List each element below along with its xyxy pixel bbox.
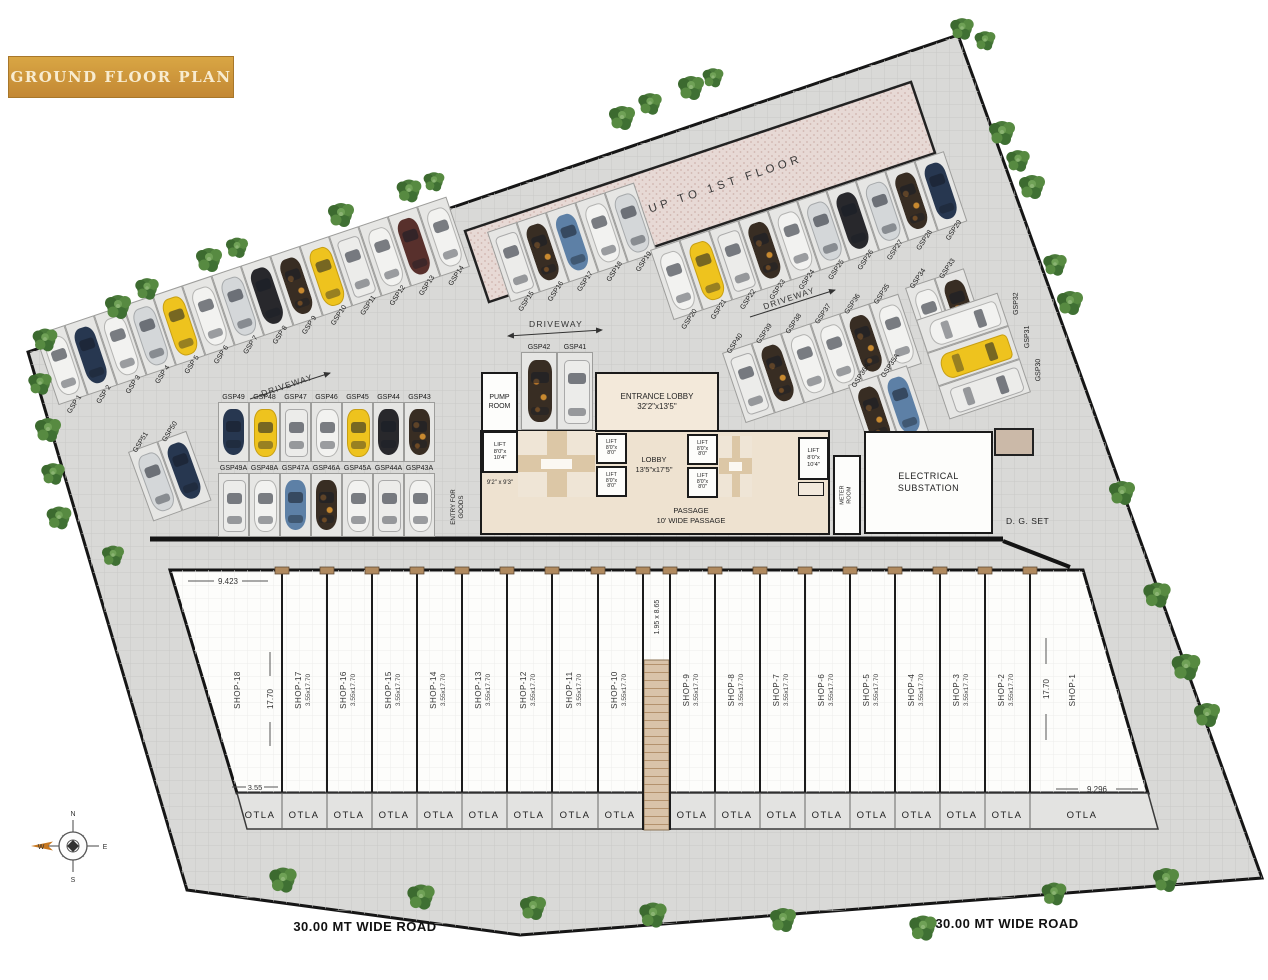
parking-stall-label: GSP45 bbox=[343, 394, 372, 401]
shop-label: SHOP-5 bbox=[862, 674, 871, 707]
shop-dim-label: 3.55x17.70 bbox=[395, 674, 402, 707]
otla-label: OTLA bbox=[289, 810, 320, 821]
car-icon bbox=[285, 409, 308, 457]
shop-dim-label: 3.55x17.70 bbox=[530, 674, 537, 707]
parking-stall-label: GSP43A bbox=[405, 465, 434, 472]
otla-label: OTLA bbox=[334, 810, 365, 821]
shop-label: SHOP-17 bbox=[294, 671, 303, 709]
car-icon bbox=[223, 480, 246, 532]
compass-rose: N E S W bbox=[31, 811, 108, 884]
shop-label: SHOP-7 bbox=[772, 674, 781, 707]
parking-stall-label: GSP43 bbox=[405, 394, 434, 401]
service-room bbox=[798, 482, 824, 496]
entry-for-goods-label: ENTRY FOR GOODS bbox=[450, 465, 466, 549]
shop-dim-label: 3.55x17.70 bbox=[440, 674, 447, 707]
shop-dim-label: 3.55x17.70 bbox=[873, 674, 880, 707]
parking-stall: GSP44 bbox=[373, 402, 404, 462]
entrance-lobby: ENTRANCE LOBBY 32'2"x13'5" bbox=[595, 372, 719, 432]
lobby-label: LOBBY 13'5"x17'5" bbox=[622, 448, 686, 482]
lift-mid-3: LIFT 8'0"x 8'0" bbox=[687, 434, 718, 465]
shop-dim-label: 3.55x17.70 bbox=[738, 674, 745, 707]
car-icon bbox=[409, 409, 430, 455]
parking-stall-label: GSP44 bbox=[374, 394, 403, 401]
shop-dim-label: 3.55x17.70 bbox=[693, 674, 700, 707]
otla-label: OTLA bbox=[560, 810, 591, 821]
shop-label: SHOP-6 bbox=[817, 674, 826, 707]
parking-stall: GSP45A bbox=[342, 473, 373, 537]
otla-label: OTLA bbox=[379, 810, 410, 821]
car-icon bbox=[223, 409, 244, 455]
parking-stall-label: GSP44A bbox=[374, 465, 403, 472]
parking-stall-label: GSP48A bbox=[250, 465, 279, 472]
shop-label: SHOP-1 bbox=[1068, 674, 1077, 707]
dim-corridor: 1.95 x 8.65 bbox=[654, 600, 661, 635]
car-icon bbox=[378, 409, 399, 455]
passage-label: PASSAGE 10' WIDE PASSAGE bbox=[598, 498, 784, 534]
otla-label: OTLA bbox=[722, 810, 753, 821]
shop-label: SHOP-4 bbox=[907, 674, 916, 707]
otla-label: OTLA bbox=[514, 810, 545, 821]
shop-label: SHOP-9 bbox=[682, 674, 691, 707]
stair-room bbox=[994, 428, 1034, 456]
electrical-substation: ELECTRICAL SUBSTATION bbox=[864, 431, 993, 534]
shop-label: SHOP-13 bbox=[474, 671, 483, 709]
shop-label: SHOP-12 bbox=[519, 671, 528, 709]
parking-stall: GSP47 bbox=[280, 402, 311, 462]
car-icon bbox=[564, 360, 590, 424]
room-9x9-label: 9'2" x 9'3" bbox=[478, 477, 522, 491]
shop-dim-label: 3.55x17.70 bbox=[783, 674, 790, 707]
lift-mid-4: LIFT 8'0"x 8'0" bbox=[687, 467, 718, 498]
parking-stall-label: GSP47A bbox=[281, 465, 310, 472]
otla-label: OTLA bbox=[605, 810, 636, 821]
car-icon bbox=[285, 480, 306, 530]
shop-dim-label: 3.55x17.70 bbox=[963, 674, 970, 707]
lift-left: LIFT 8'0"x 10'4" bbox=[482, 431, 518, 473]
plan-title-text: GROUND FLOOR PLAN bbox=[10, 68, 231, 86]
shop-label: SHOP-14 bbox=[429, 671, 438, 709]
dim-shop18-depth: 17.70 bbox=[266, 688, 275, 709]
dim-shop18-top: 9.423 bbox=[218, 577, 239, 586]
parking-stall-label: GSP47 bbox=[281, 394, 310, 401]
compass-e: E bbox=[103, 844, 108, 851]
shop-label: SHOP-15 bbox=[384, 671, 393, 709]
shop-dim-label: 3.55x17.70 bbox=[621, 674, 628, 707]
shop-dim-label: 3.55x17.70 bbox=[350, 674, 357, 707]
shop-dim-label: 3.55x17.70 bbox=[1008, 674, 1015, 707]
shop-label: SHOP-8 bbox=[727, 674, 736, 707]
plan-title: GROUND FLOOR PLAN bbox=[8, 56, 234, 98]
parking-stall: GSP48 bbox=[249, 402, 280, 462]
car-icon bbox=[254, 409, 277, 457]
parking-stall-label: GSP42 bbox=[522, 344, 556, 351]
dg-set-label: D. G. SET bbox=[1006, 516, 1049, 526]
shop-dim-label: 3.55x17.70 bbox=[305, 674, 312, 707]
compass-n: N bbox=[70, 811, 75, 818]
parking-stall: GSP47A bbox=[280, 473, 311, 537]
pump-room: PUMP ROOM bbox=[481, 372, 518, 432]
parking-stall-label: GSP32 bbox=[1013, 292, 1020, 315]
car-icon bbox=[316, 480, 337, 530]
parking-stall-label: GSP45A bbox=[343, 465, 372, 472]
meter-room-label: METER ROOM bbox=[840, 485, 854, 504]
shop-label: SHOP-10 bbox=[610, 671, 619, 709]
otla-label: OTLA bbox=[1067, 810, 1098, 821]
dim-shop18-bottom: 3.55 bbox=[248, 783, 263, 792]
car-icon bbox=[347, 409, 370, 457]
lift-right: LIFT 8'0"x 10'4" bbox=[798, 437, 829, 480]
shop-label: SHOP-16 bbox=[339, 671, 348, 709]
dim-shop1-depth: 17.70 bbox=[1042, 678, 1051, 699]
car-icon bbox=[347, 480, 370, 532]
parking-stall: GSP49 bbox=[218, 402, 249, 462]
shop-dim-label: 3.55x17.70 bbox=[828, 674, 835, 707]
otla-label: OTLA bbox=[767, 810, 798, 821]
parking-stall: GSP42 bbox=[521, 352, 557, 430]
parking-stall-label: GSP48 bbox=[250, 394, 279, 401]
parking-stall-label: GSP41 bbox=[558, 344, 592, 351]
road-label-right: 30.00 MT WIDE ROAD bbox=[935, 916, 1078, 931]
parking-stall: GSP43A bbox=[404, 473, 435, 537]
otla-label: OTLA bbox=[947, 810, 978, 821]
car-icon bbox=[254, 480, 277, 532]
shop-label: SHOP-3 bbox=[952, 674, 961, 707]
car-icon bbox=[378, 480, 401, 532]
shop-label: SHOP-11 bbox=[565, 671, 574, 708]
parking-stall-label: GSP49 bbox=[219, 394, 248, 401]
otla-label: OTLA bbox=[677, 810, 708, 821]
parking-stall: GSP41 bbox=[557, 352, 593, 430]
parking-stall: GSP46 bbox=[311, 402, 342, 462]
otla-label: OTLA bbox=[812, 810, 843, 821]
otla-label: OTLA bbox=[245, 810, 276, 821]
parking-stall: GSP45 bbox=[342, 402, 373, 462]
otla-label: OTLA bbox=[902, 810, 933, 821]
parking-stall: GSP43 bbox=[404, 402, 435, 462]
meter-room: METER ROOM bbox=[833, 455, 861, 535]
otla-label: OTLA bbox=[857, 810, 888, 821]
shop-dim-label: 3.55x17.70 bbox=[918, 674, 925, 707]
car-icon bbox=[409, 480, 432, 532]
shop-dim-label: 3.55x17.70 bbox=[485, 674, 492, 707]
parking-stall-label: GSP46 bbox=[312, 394, 341, 401]
otla-label: OTLA bbox=[424, 810, 455, 821]
parking-stall-label: GSP46A bbox=[312, 465, 341, 472]
car-icon bbox=[528, 360, 552, 422]
floor-plan-page: RAMP UP TO 1ST FLOOR bbox=[0, 0, 1268, 980]
parking-stall-label: GSP49A bbox=[219, 465, 248, 472]
parking-stall: GSP46A bbox=[311, 473, 342, 537]
driveway-label-center: DRIVEWAY bbox=[529, 319, 583, 329]
car-icon bbox=[316, 409, 339, 457]
compass-w: W bbox=[38, 844, 45, 851]
shop-label: SHOP-2 bbox=[997, 674, 1006, 707]
parking-stall-label: GSP30 bbox=[1035, 359, 1042, 382]
shop-label: SHOP-18 bbox=[233, 671, 242, 709]
otla-label: OTLA bbox=[469, 810, 500, 821]
shop-dim-label: 3.55x17.70 bbox=[576, 674, 583, 707]
dim-shop1-bottom: 9.296 bbox=[1087, 785, 1108, 794]
corridor-left bbox=[518, 431, 595, 497]
road-label-left: 30.00 MT WIDE ROAD bbox=[293, 919, 436, 934]
parking-stall-label: GSP31 bbox=[1024, 325, 1031, 348]
parking-stall: GSP49A bbox=[218, 473, 249, 537]
otla-label: OTLA bbox=[992, 810, 1023, 821]
compass-s: S bbox=[71, 877, 76, 884]
corridor-right bbox=[719, 436, 752, 497]
parking-stall: GSP48A bbox=[249, 473, 280, 537]
parking-stall: GSP44A bbox=[373, 473, 404, 537]
